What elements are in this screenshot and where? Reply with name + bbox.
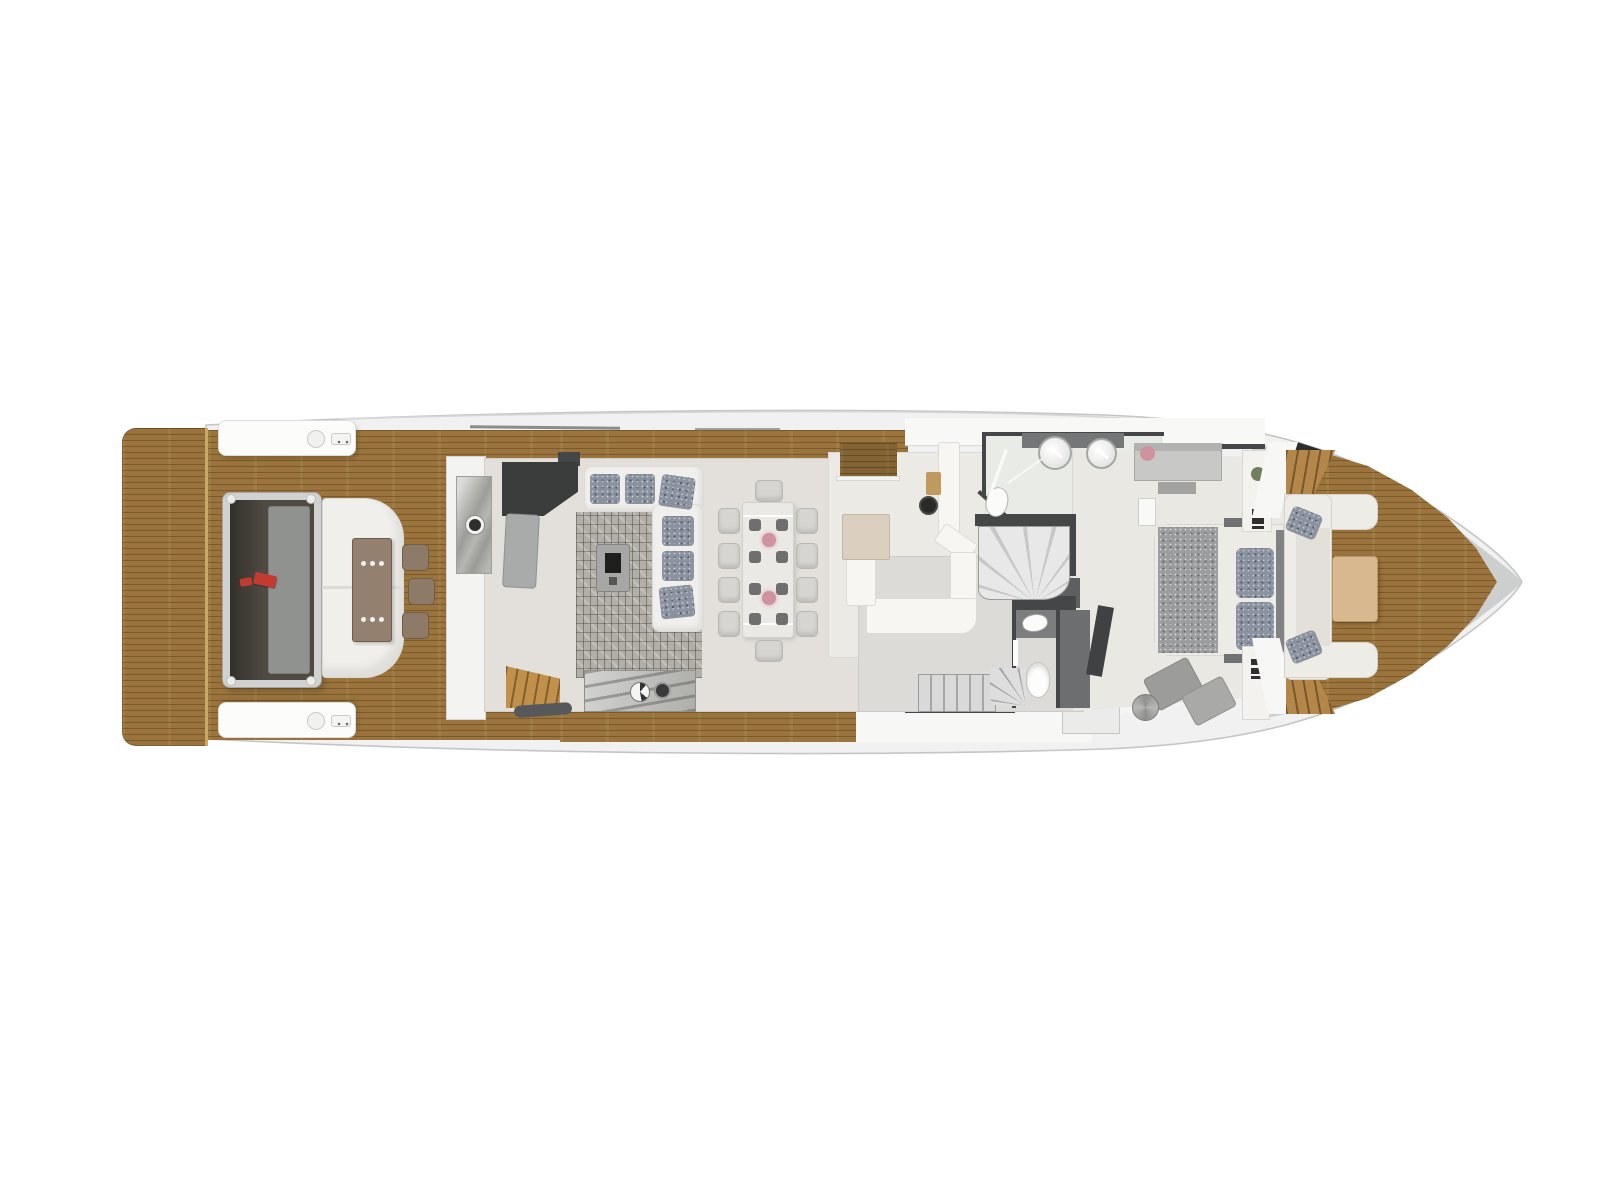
sink-sparkle — [1096, 448, 1109, 460]
table-dot — [370, 617, 375, 622]
cabin-floral — [1140, 446, 1155, 461]
bow-seat-cushion — [1296, 528, 1330, 646]
bow-table — [1332, 556, 1378, 622]
galley-island — [842, 514, 890, 560]
sofa-cushion — [590, 474, 620, 504]
deck-stool — [408, 578, 435, 605]
salon-bench — [502, 513, 540, 589]
table-dot — [370, 561, 375, 566]
sofa-cushion — [658, 474, 696, 510]
place-setting — [776, 519, 788, 531]
hatch-switch — [331, 433, 351, 445]
cabin-mat — [1158, 482, 1196, 494]
sink-sparkle — [1049, 446, 1063, 459]
sofa-cushion — [662, 516, 694, 546]
table-dot — [609, 577, 617, 585]
salon-cup-decor — [466, 516, 484, 534]
hatch-circle — [307, 430, 325, 448]
aft-lounge-panel — [268, 506, 310, 674]
dining-chair — [755, 480, 783, 502]
sofa-cushion — [625, 474, 655, 504]
galley-counter-left — [846, 554, 876, 606]
place-setting — [749, 583, 761, 595]
dining-chair — [796, 611, 818, 637]
bathroom-wall-left — [982, 432, 986, 496]
place-setting — [749, 519, 761, 531]
table-dot — [361, 617, 366, 622]
dining-chair — [796, 508, 818, 534]
dining-table — [742, 502, 794, 638]
floral-centerpiece — [762, 591, 776, 605]
walkway-bottom-mid — [856, 712, 1092, 742]
frame-knob — [306, 494, 316, 504]
dining-chair — [796, 543, 818, 569]
swim-platform — [122, 428, 206, 746]
deck-hatch-top — [218, 420, 356, 456]
runner-line — [743, 515, 793, 517]
place-setting — [776, 551, 788, 563]
bath-door — [1138, 498, 1156, 526]
coffee-table — [596, 544, 630, 592]
table-dot — [361, 561, 366, 566]
dining-chair — [796, 577, 818, 603]
bath-sink — [1086, 438, 1117, 469]
round-stool — [1132, 694, 1159, 721]
frame-knob — [226, 676, 236, 686]
hatch-circle — [307, 712, 325, 730]
dining-chair — [718, 508, 740, 534]
dining-chair — [718, 577, 740, 603]
aft-table — [352, 538, 392, 642]
sofa-cushion — [658, 584, 695, 619]
place-setting — [749, 551, 761, 563]
spiral-staircase — [978, 526, 1070, 600]
deck-stool — [402, 612, 429, 639]
dining-chair — [718, 543, 740, 569]
deck-stool — [402, 544, 429, 571]
place-setting — [749, 613, 761, 625]
sofa-cushion — [662, 551, 694, 581]
deck-hatch-bottom — [218, 702, 356, 738]
spiral-wall-top — [975, 514, 1075, 526]
dayhead-toilet — [1026, 662, 1050, 698]
place-setting — [776, 583, 788, 595]
sideboard-bowl — [654, 682, 671, 699]
galley-counter-right — [938, 442, 960, 538]
hatch-switch — [331, 715, 351, 727]
galley-sink — [919, 496, 938, 515]
cutting-board — [926, 472, 941, 495]
bed-runner — [1158, 527, 1218, 653]
stairs-down-turn — [990, 668, 1026, 706]
galley-wood-trim — [836, 476, 900, 481]
dayhead-door — [1013, 640, 1018, 666]
stairs-down — [918, 674, 996, 712]
bath-sink — [1038, 436, 1072, 470]
dining-chair — [755, 640, 783, 662]
table-dot — [379, 561, 384, 566]
galley-wood-counter — [840, 443, 897, 477]
table-dot — [379, 617, 384, 622]
yacht-floor-plan — [0, 0, 1600, 1200]
bed-pillows — [1236, 548, 1274, 598]
wardrobe — [1060, 610, 1090, 708]
place-setting — [776, 613, 788, 625]
sideboard-plate — [630, 682, 650, 702]
frame-knob — [306, 676, 316, 686]
floral-centerpiece — [762, 533, 776, 547]
frame-knob — [226, 494, 236, 504]
galley-counter-bottom — [866, 598, 977, 634]
dining-chair — [718, 611, 740, 637]
tv-screen — [605, 553, 621, 573]
